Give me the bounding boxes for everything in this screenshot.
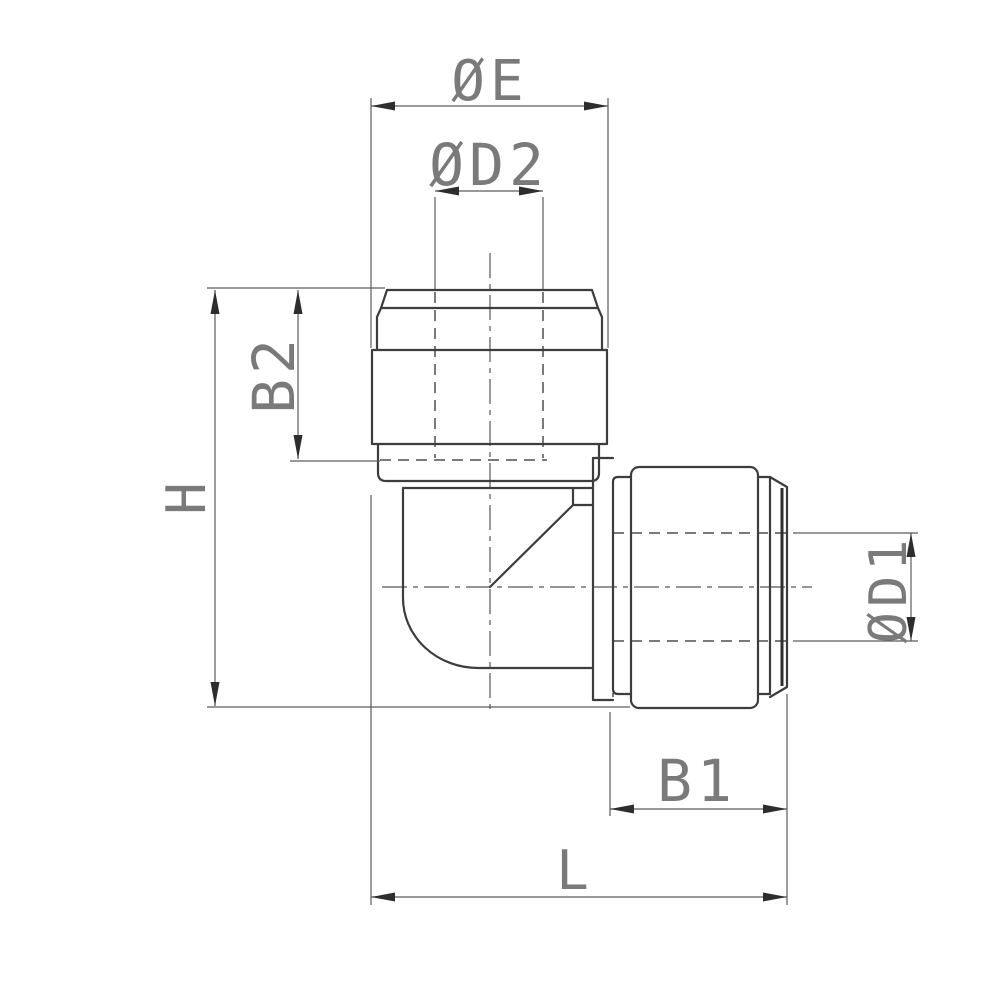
- h-label: H: [155, 477, 218, 515]
- hidden-lines: [380, 292, 788, 697]
- od1-label: ØD1: [859, 535, 919, 644]
- dimension-od1: ØD1: [793, 533, 919, 643]
- right-port-inner-ring: [613, 477, 631, 694]
- arrowhead: [294, 290, 303, 314]
- drawing-sheet: ØE ØD2 B2 H: [0, 0, 1000, 1000]
- right-port-bore-hidden-lines: [613, 531, 788, 697]
- od2-extension-lines: [435, 197, 543, 289]
- arrowhead: [763, 805, 787, 814]
- arrowhead: [584, 102, 608, 111]
- centerlines: [382, 253, 812, 714]
- b1-label: B1: [657, 747, 737, 815]
- drawing-canvas: ØE ØD2 B2 H: [0, 0, 1000, 1000]
- arrowhead: [371, 102, 395, 111]
- arrowhead: [371, 893, 395, 902]
- top-port-bore-hidden-lines: [380, 292, 547, 460]
- od2-label: ØD2: [429, 131, 549, 199]
- elbow-body-outline: [403, 458, 613, 700]
- arrowhead: [211, 290, 220, 314]
- dimension-b2: B2: [240, 290, 380, 461]
- l-label: L: [556, 839, 594, 902]
- oe-label: ØE: [451, 49, 528, 114]
- arrowhead: [294, 435, 303, 459]
- b2-label: B2: [240, 334, 308, 414]
- arrowhead: [211, 682, 220, 706]
- arrowhead: [610, 805, 634, 814]
- elbow-body: [403, 458, 613, 700]
- right-port-outer-ring: [758, 477, 770, 694]
- arrowhead: [763, 893, 787, 902]
- dimension-od2: ØD2: [429, 131, 549, 289]
- dimension-b1: B1: [610, 694, 787, 905]
- elbow-inner-corner-chamfer: [490, 488, 593, 587]
- dimension-l: L: [371, 495, 787, 905]
